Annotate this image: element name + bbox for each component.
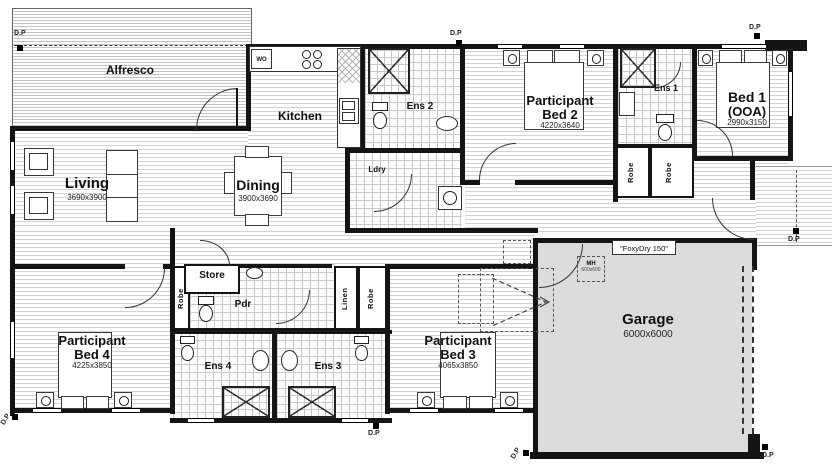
entry-door-arc bbox=[712, 198, 754, 240]
pdr-toilet bbox=[196, 296, 216, 323]
lamp bbox=[422, 396, 432, 406]
wall-bed2-bottom-a bbox=[460, 180, 480, 185]
cooktop-burner-3 bbox=[302, 60, 311, 69]
wall-pdr-bottom bbox=[188, 328, 335, 332]
ens2-toilet bbox=[370, 102, 390, 130]
living-dim: 3690x3900 bbox=[52, 194, 122, 202]
dp-marker-porch bbox=[793, 228, 799, 234]
window-ens3-bottom bbox=[342, 418, 368, 423]
wall-ens2-ldry bbox=[345, 148, 465, 153]
bed2-pillow-2 bbox=[554, 50, 580, 63]
foxydry-label: "FoxyDry 150" bbox=[620, 244, 668, 253]
ens4-toilet bbox=[178, 336, 197, 362]
wall-bed4-top-a bbox=[12, 264, 125, 269]
window-bed1-top bbox=[722, 44, 766, 49]
cooktop-burner-4 bbox=[313, 60, 322, 69]
cooktop-burner-2 bbox=[313, 50, 322, 59]
window-bed4-bottom-1 bbox=[33, 408, 61, 413]
cooktop-burner-1 bbox=[302, 50, 311, 59]
robe-bed2-label: Robe bbox=[626, 152, 638, 194]
ens3-toilet bbox=[352, 336, 371, 362]
living-armchair-1 bbox=[24, 148, 54, 176]
window-bed2-right bbox=[560, 44, 584, 49]
window-bed4-left bbox=[10, 322, 15, 358]
lamp bbox=[702, 54, 711, 64]
dp-marker-top-right bbox=[754, 33, 760, 39]
bed1-label-2: (OOA) bbox=[710, 105, 784, 119]
wall-bed2-bottom-b bbox=[515, 180, 617, 185]
ens3-basin bbox=[281, 350, 298, 371]
bed2-label-1: Participant bbox=[508, 94, 612, 108]
floor-plan: Robe Store Linen Robe Robe Robe WO bbox=[0, 0, 835, 467]
dp-marker-garage-right bbox=[762, 444, 768, 450]
manhole-dim: 600x600 bbox=[578, 267, 604, 273]
toilet-bowl bbox=[658, 124, 673, 142]
laundry-tub-bowl bbox=[443, 191, 457, 205]
foxydry-box: "FoxyDry 150" bbox=[612, 240, 676, 255]
wall-ens4-ens3-divider bbox=[272, 332, 277, 420]
dining-label: Dining bbox=[228, 178, 288, 193]
toilet-tank bbox=[180, 336, 195, 344]
toilet-tank bbox=[372, 102, 388, 111]
bed3-stand-left bbox=[417, 392, 435, 408]
bed2-dim: 4220x3640 bbox=[508, 122, 612, 130]
sink-bowl-2 bbox=[342, 112, 355, 121]
ens3-label: Ens 3 bbox=[306, 362, 350, 373]
bed2-stand-right bbox=[587, 50, 604, 66]
toilet-bowl bbox=[373, 112, 387, 130]
toilet-tank bbox=[656, 114, 674, 123]
dp-marker-top-center bbox=[456, 40, 462, 46]
ens2-label: Ens 2 bbox=[398, 102, 442, 113]
lamp bbox=[41, 396, 51, 406]
window-living-1 bbox=[10, 142, 15, 170]
bed2-pillow-1 bbox=[527, 50, 553, 63]
dining-chair-bottom bbox=[245, 214, 269, 226]
dp-label-top-center: D.P bbox=[450, 30, 462, 37]
bed3-pillow-1 bbox=[443, 396, 467, 409]
lamp bbox=[508, 54, 518, 64]
bed4-label-2: Bed 4 bbox=[50, 348, 134, 362]
dp-label-ens3: D.P bbox=[368, 430, 380, 437]
wall-bed1-bottom bbox=[692, 156, 792, 161]
bed2-label-2: Bed 2 bbox=[508, 108, 612, 122]
garage-panel-door-dashed-2 bbox=[752, 266, 754, 434]
alfresco-roofline-dashed bbox=[14, 45, 248, 46]
bed3-dim: 4065x3850 bbox=[416, 362, 500, 370]
sink-bowl-1 bbox=[342, 101, 355, 110]
garage-label: Garage bbox=[608, 312, 688, 328]
ens1-shower bbox=[620, 48, 656, 88]
ens1-vanity bbox=[619, 92, 635, 116]
ens4-basin bbox=[252, 350, 269, 371]
wall-garage-right-corner bbox=[748, 434, 760, 456]
wall-garage-bottom bbox=[530, 452, 764, 459]
ens2-basin bbox=[436, 116, 458, 131]
bed4-pillow-2 bbox=[86, 396, 109, 409]
alfresco-door-leaf bbox=[236, 88, 238, 130]
garage-dim: 6000x6000 bbox=[608, 330, 688, 340]
dp-label-top-right: D.P bbox=[749, 24, 761, 31]
toilet-bowl bbox=[181, 345, 194, 362]
sofa-cushion-line bbox=[107, 174, 137, 175]
toilet-bowl bbox=[199, 305, 213, 322]
living-armchair-2 bbox=[24, 192, 54, 220]
bed3-label-2: Bed 3 bbox=[416, 348, 500, 362]
bed3-stand-right bbox=[500, 392, 518, 408]
wall-oven-label: WO bbox=[256, 57, 266, 63]
living-label: Living bbox=[52, 176, 122, 192]
dp-marker-alfresco bbox=[17, 45, 23, 51]
provision-box-hall bbox=[503, 240, 531, 264]
kitchen-pantry-hatch bbox=[338, 49, 360, 83]
dp-label-garage-right: D.P bbox=[762, 452, 774, 459]
window-bed2-left bbox=[498, 44, 522, 49]
wall-ens2-bed2 bbox=[460, 44, 465, 185]
robe-bed3-label: Robe bbox=[366, 276, 378, 322]
pdr-label: Pdr bbox=[228, 300, 258, 311]
bed4-stand-right bbox=[114, 392, 132, 408]
wall-right-entry bbox=[750, 158, 755, 200]
lamp bbox=[776, 54, 785, 64]
window-bed4-bottom-2 bbox=[112, 408, 140, 413]
bed1-stand-right bbox=[772, 50, 787, 66]
dp-label-bottom-left: D.P bbox=[0, 413, 12, 427]
dining-chair-top bbox=[245, 146, 269, 158]
ens3-shower bbox=[288, 386, 336, 418]
ens1-toilet bbox=[654, 114, 676, 142]
cushion bbox=[29, 153, 48, 170]
bed1-pillow-1 bbox=[719, 50, 742, 63]
kitchen-label: Kitchen bbox=[258, 110, 342, 123]
bed1-dim: 2990x3150 bbox=[710, 119, 784, 127]
bed2-stand-left bbox=[503, 50, 520, 66]
dp-marker-bottom-left bbox=[12, 414, 18, 420]
ens2-shower bbox=[368, 48, 410, 94]
toilet-tank bbox=[198, 296, 214, 305]
garage-panel-door-dashed-1 bbox=[742, 266, 744, 434]
kitchen-sink bbox=[339, 98, 359, 124]
lamp bbox=[592, 54, 602, 64]
window-bed1-right bbox=[788, 72, 793, 116]
wall-dining-ldry bbox=[345, 148, 350, 233]
bed4-label-1: Participant bbox=[50, 334, 134, 348]
toilet-tank bbox=[354, 336, 369, 344]
window-ens4-bottom bbox=[188, 418, 214, 423]
wall-hall-top bbox=[350, 228, 538, 233]
robe-bed1-label: Robe bbox=[664, 152, 676, 194]
wall-oven: WO bbox=[251, 49, 272, 69]
alfresco-label: Alfresco bbox=[65, 64, 195, 77]
porch-floor bbox=[756, 166, 832, 246]
dining-dim: 3900x3690 bbox=[228, 195, 288, 203]
bed4-stand-left bbox=[36, 392, 54, 408]
bed1-stand-left bbox=[698, 50, 713, 66]
provision-arrows bbox=[488, 270, 568, 334]
lamp bbox=[119, 396, 129, 406]
ldry-label: Ldry bbox=[360, 166, 394, 174]
dp-marker-ens3 bbox=[373, 423, 379, 429]
ens4-label: Ens 4 bbox=[196, 362, 240, 373]
toilet-bowl bbox=[355, 345, 368, 362]
cushion bbox=[29, 197, 48, 214]
dp-label-porch: D.P bbox=[788, 236, 800, 243]
dp-marker-garage-left bbox=[523, 450, 529, 456]
wall-hall-stub bbox=[170, 228, 175, 264]
bed3-pillow-2 bbox=[469, 396, 493, 409]
bed1-pillow-2 bbox=[744, 50, 767, 63]
bed4-pillow-1 bbox=[61, 396, 84, 409]
ens1-label: Ens 1 bbox=[644, 84, 688, 93]
manhole-box: MH 600x600 bbox=[577, 256, 605, 282]
dp-label-garage-left: D.P bbox=[510, 447, 522, 461]
dp-label-alfresco: D.P bbox=[14, 30, 26, 37]
window-bed3-bottom-2 bbox=[495, 408, 523, 413]
pdr-basin bbox=[246, 267, 263, 279]
window-living-2 bbox=[10, 186, 15, 214]
bed3-label-1: Participant bbox=[416, 334, 500, 348]
ens4-shower bbox=[222, 386, 270, 418]
store-label: Store bbox=[188, 271, 236, 282]
window-bed3-bottom-1 bbox=[410, 408, 438, 413]
bed4-dim: 4225x3850 bbox=[50, 362, 134, 370]
linen-label: Linen bbox=[340, 276, 352, 322]
bed1-label-1: Bed 1 bbox=[710, 90, 784, 105]
lamp bbox=[505, 396, 515, 406]
